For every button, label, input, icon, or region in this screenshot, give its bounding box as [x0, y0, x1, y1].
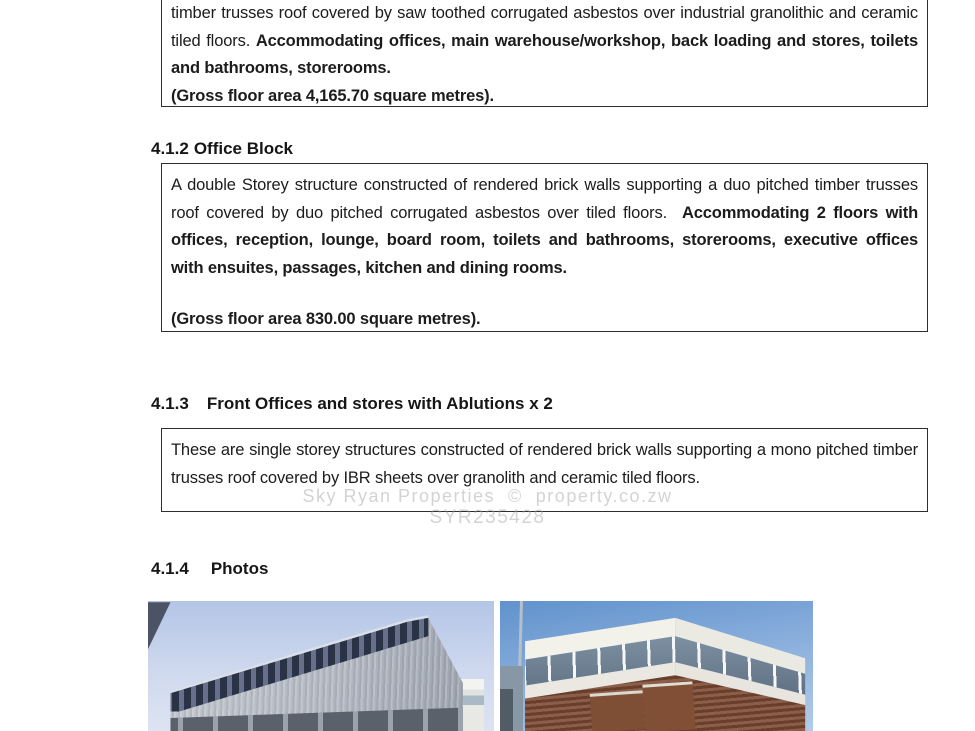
section-title-413: Front Offices and stores with Ablutions … [207, 394, 553, 413]
document-page: { "doc": { "box1": { "normal": "timber t… [0, 0, 975, 731]
section-heading-414: 4.1.4Photos [151, 557, 268, 581]
office-block-gross-floor-area: (Gross floor area 830.00 square metres). [162, 306, 927, 332]
photo-office-left-structure-shadow [500, 689, 513, 731]
office-block-description-paragraph: A double Storey structure constructed of… [162, 164, 927, 282]
section-title-414: Photos [211, 559, 269, 578]
section-title-412: Office Block [194, 139, 293, 158]
section-number-414: 4.1.4 [151, 559, 189, 578]
description-box-front-offices: These are single storey structures const… [161, 428, 928, 512]
section-number-413: 4.1.3 [151, 394, 189, 413]
section-heading-412: 4.1.2Office Block [151, 137, 293, 161]
description-box-office-block: A double Storey structure constructed of… [161, 163, 928, 332]
photo-warehouse-exterior [148, 601, 494, 731]
warehouse-description-paragraph: timber trusses roof covered by saw tooth… [162, 0, 927, 83]
warehouse-gross-floor-area: (Gross floor area 4,165.70 square metres… [162, 83, 927, 108]
photo-office-block-exterior [500, 601, 813, 731]
front-offices-description-paragraph: These are single storey structures const… [162, 429, 927, 492]
warehouse-accommodation-bold-text: Accommodating offices, main warehouse/wo… [171, 32, 918, 78]
photo-office-brick-balcony-left [589, 690, 645, 731]
photo-office-brick-balcony-right [642, 681, 695, 731]
description-box-warehouse: timber trusses roof covered by saw tooth… [161, 0, 928, 107]
section-heading-413: 4.1.3Front Offices and stores with Ablut… [151, 392, 553, 416]
section-number-412: 4.1.2 [151, 139, 189, 158]
